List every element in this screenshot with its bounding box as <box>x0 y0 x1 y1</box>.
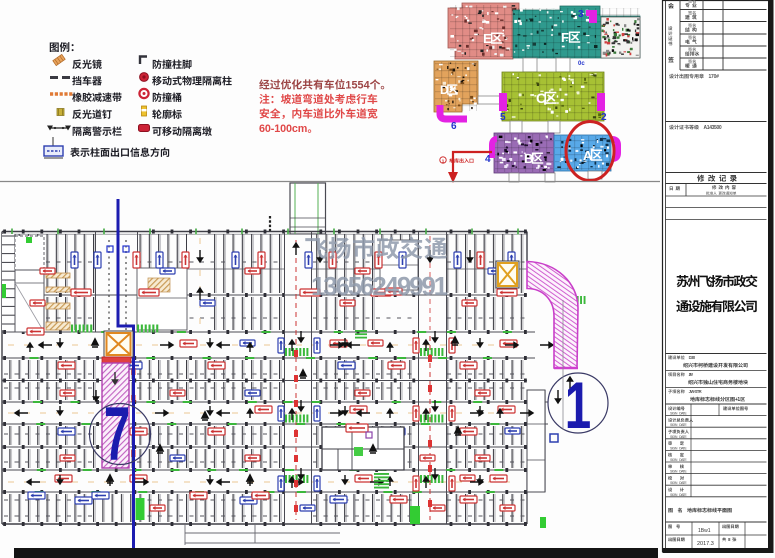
svg-text:60-100cm: 60-100cm <box>259 123 307 135</box>
svg-text:JW-STR: JW-STR <box>689 389 702 394</box>
svg-text:DATE: DATE <box>679 423 687 427</box>
svg-text:JW: JW <box>689 372 693 377</box>
svg-text:1Bw1: 1Bw1 <box>698 528 711 534</box>
svg-text:DATE: DATE <box>679 446 687 450</box>
svg-text:DATE: DATE <box>679 493 687 497</box>
svg-text:5: 5 <box>500 112 506 123</box>
svg-text:SIGN: SIGN <box>670 458 678 462</box>
svg-text:SIGN: SIGN <box>670 446 678 450</box>
svg-text:SIGN: SIGN <box>670 412 678 416</box>
svg-text:6: 6 <box>451 121 457 132</box>
svg-text:1554: 1554 <box>345 80 369 92</box>
svg-text:13656249991: 13656249991 <box>311 271 448 301</box>
svg-text:A143500: A143500 <box>704 125 722 131</box>
svg-text:4: 4 <box>485 154 491 165</box>
svg-text:SIGN: SIGN <box>670 493 678 497</box>
svg-text:7: 7 <box>104 393 130 477</box>
svg-text:170#: 170# <box>709 74 720 80</box>
svg-text:SIGN: SIGN <box>670 423 678 427</box>
svg-text:E: E <box>483 31 492 46</box>
svg-text:F: F <box>561 30 569 45</box>
svg-text:+1: +1 <box>735 397 740 403</box>
svg-text:3: 3 <box>578 9 584 20</box>
svg-text:DATE: DATE <box>679 470 687 474</box>
svg-text:DATE: DATE <box>679 412 687 416</box>
svg-text:SIGN: SIGN <box>670 470 678 474</box>
svg-text:2017.3: 2017.3 <box>697 541 714 547</box>
svg-text:SIGN: SIGN <box>670 435 678 439</box>
svg-text:1: 1 <box>565 369 591 442</box>
svg-text:DATE: DATE <box>679 481 687 485</box>
svg-text:DATE: DATE <box>679 435 687 439</box>
svg-text:DATE: DATE <box>679 458 687 462</box>
svg-text:D30: D30 <box>689 355 696 360</box>
svg-text:0c: 0c <box>578 61 585 67</box>
svg-text:2: 2 <box>601 112 607 123</box>
svg-text:SIGN: SIGN <box>670 481 678 485</box>
